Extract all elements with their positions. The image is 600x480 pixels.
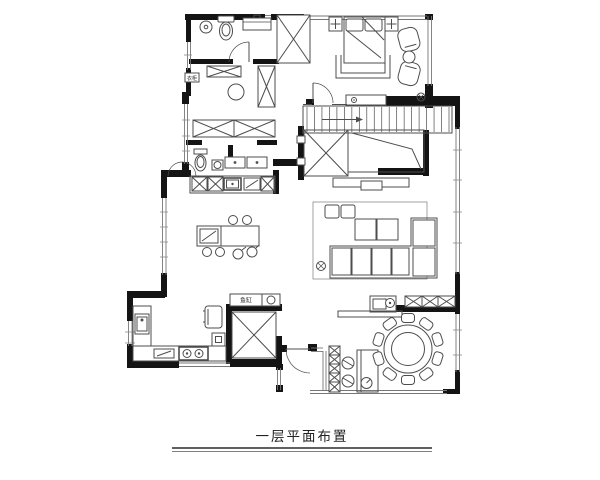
island-stool: [216, 248, 225, 257]
armchair: [396, 26, 421, 53]
wc-toilet-tank: [194, 149, 207, 154]
kettle: [247, 247, 257, 257]
coffee-table: [377, 219, 398, 240]
toilet-bowl: [220, 22, 233, 40]
sofa-cushion: [332, 248, 351, 275]
pillow: [346, 19, 363, 31]
ottoman: [325, 205, 339, 218]
floor-plan-drawing: 衣柜: [0, 0, 600, 480]
chaise-cushion: [413, 248, 435, 276]
floor-plan-page: 衣柜: [0, 0, 600, 480]
island-stool: [229, 216, 238, 225]
master-bedroom: [329, 17, 425, 101]
understair-storage: [348, 130, 424, 172]
fish-tank-label: 鱼缸: [240, 297, 252, 305]
vanity-counter: [243, 18, 271, 30]
living-room: [313, 202, 437, 279]
side-table: [403, 51, 415, 63]
armchair: [396, 60, 421, 87]
sofa-cushion: [352, 248, 371, 275]
powder-room: [194, 149, 223, 171]
round-basin: [200, 21, 212, 33]
pantry-shaft: 鱼缸: [230, 294, 280, 306]
sofa-cushion: [372, 248, 391, 275]
ottoman: [341, 205, 355, 218]
coffee-table: [355, 219, 376, 240]
chaise-cushion: [413, 220, 435, 246]
closet-label: 衣柜: [187, 75, 197, 82]
toilet-tank: [218, 16, 234, 22]
closet-stool: [228, 84, 244, 100]
tv-set: [361, 181, 382, 190]
understair-slope: [352, 133, 421, 169]
caption-title: 一层平面布置: [256, 429, 349, 445]
tv-cabinet: [333, 178, 409, 190]
sofa-cushion: [392, 248, 409, 275]
island-stool: [243, 216, 252, 225]
island-stool: [203, 248, 212, 257]
kettle: [233, 249, 243, 259]
kitchen: [133, 306, 226, 361]
breakfast-island: [197, 216, 259, 260]
caption: 一层平面布置: [172, 429, 432, 452]
base-cabinet: [212, 333, 225, 346]
